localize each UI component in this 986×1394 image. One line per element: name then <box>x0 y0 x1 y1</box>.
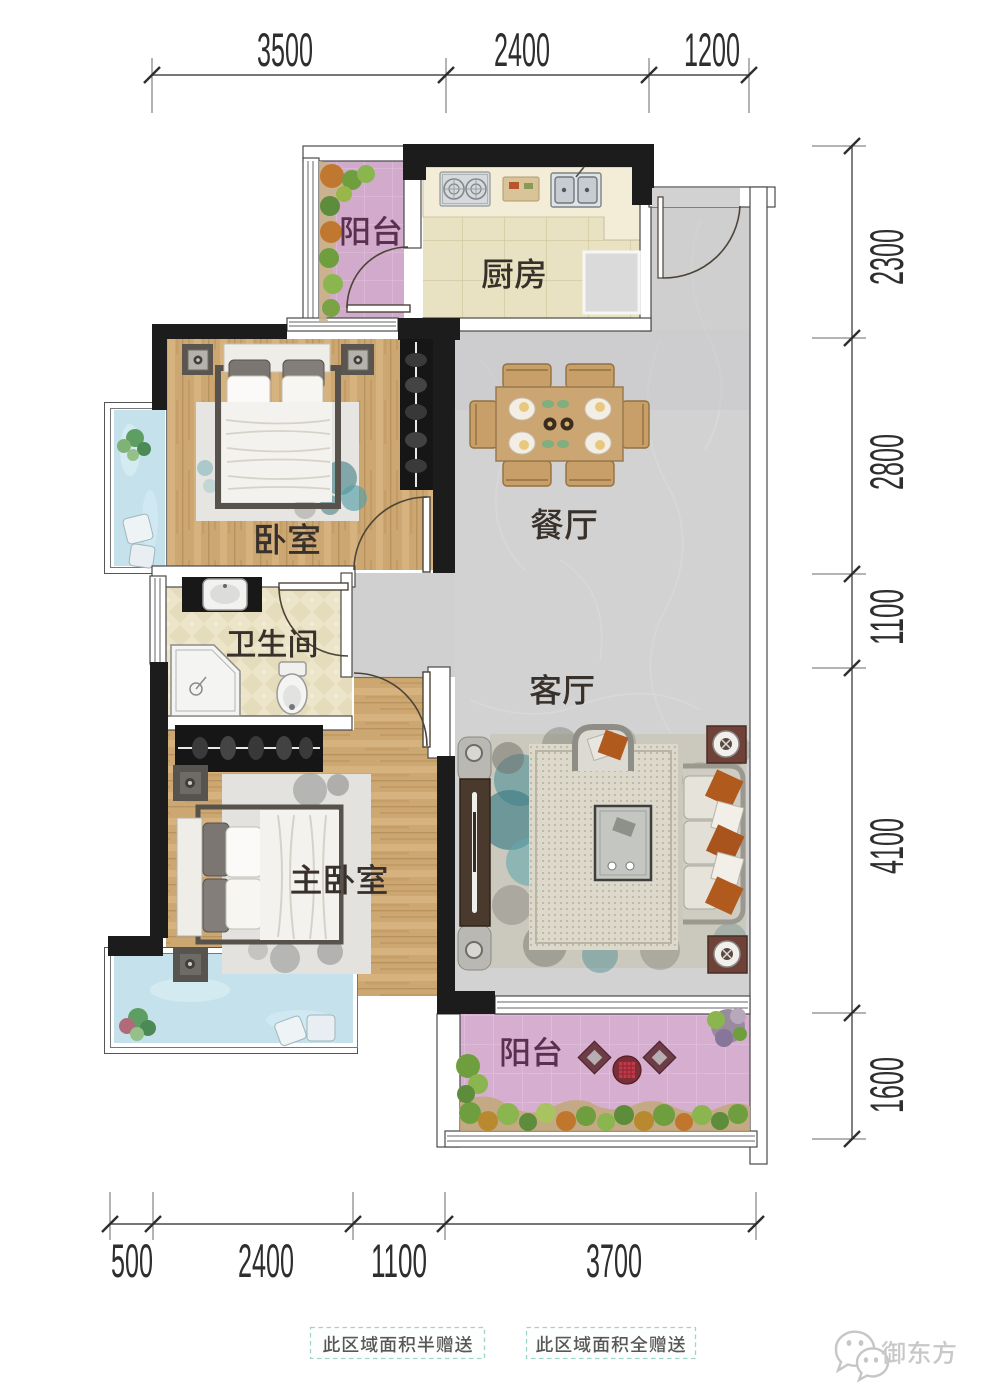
svg-text:3700: 3700 <box>586 1234 642 1287</box>
svg-text:2400: 2400 <box>238 1234 294 1287</box>
svg-text:2300: 2300 <box>860 229 913 285</box>
svg-text:1600: 1600 <box>860 1057 913 1113</box>
svg-text:4100: 4100 <box>860 818 913 874</box>
svg-text:1100: 1100 <box>860 589 913 645</box>
svg-text:1200: 1200 <box>684 23 740 76</box>
svg-text:2400: 2400 <box>494 23 550 76</box>
svg-text:1100: 1100 <box>371 1234 427 1287</box>
svg-text:3500: 3500 <box>257 23 313 76</box>
svg-text:2800: 2800 <box>860 434 913 490</box>
svg-text:500: 500 <box>111 1234 153 1287</box>
